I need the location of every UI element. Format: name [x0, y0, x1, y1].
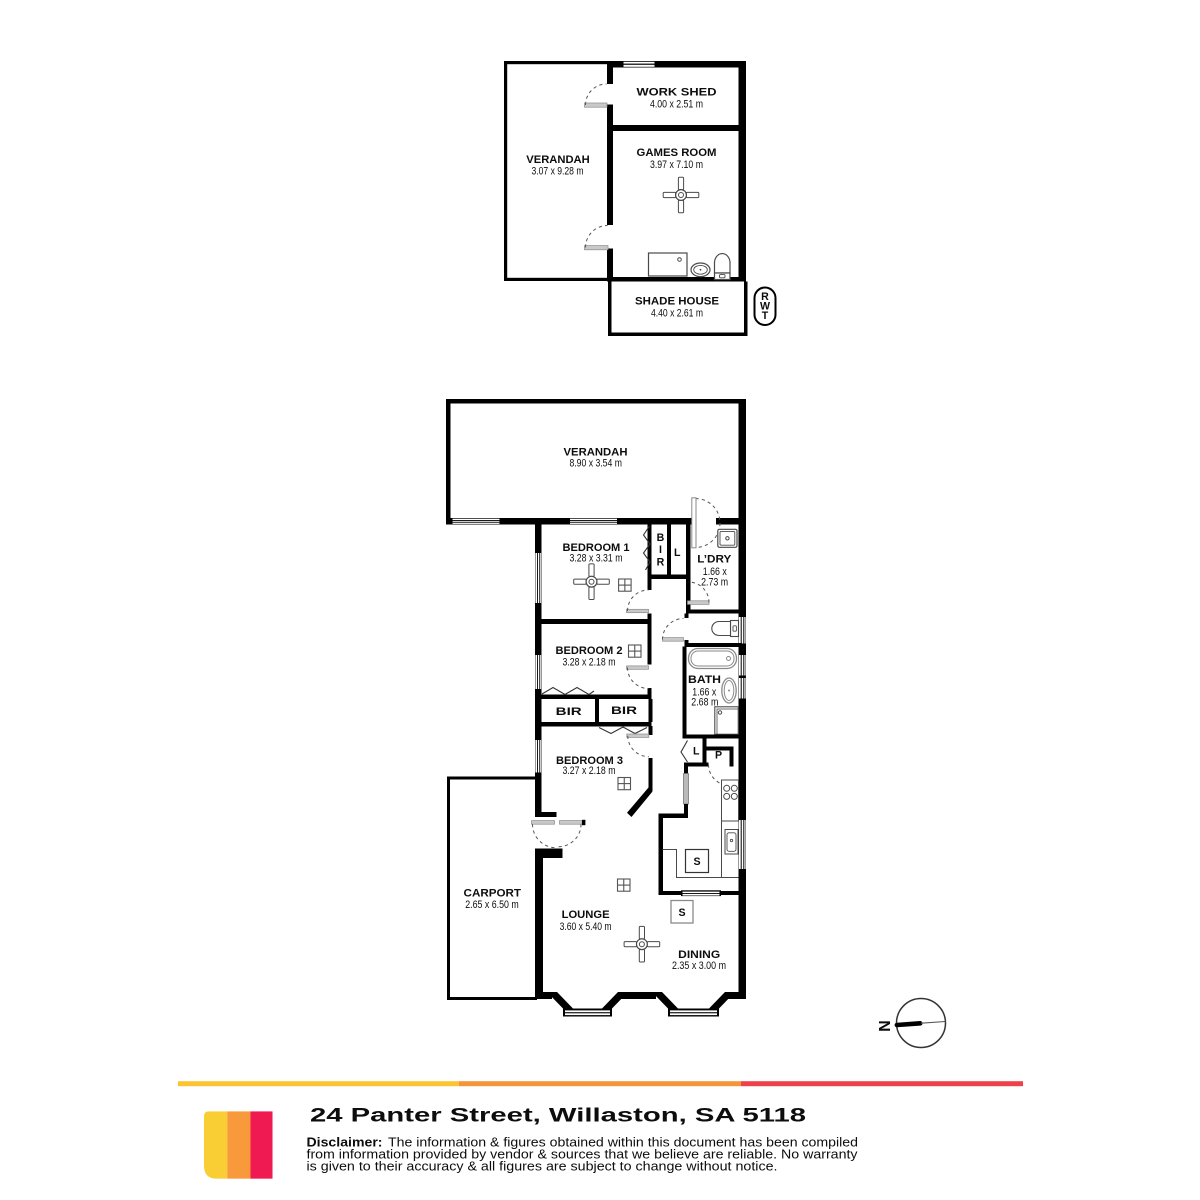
svg-text:R: R [657, 557, 665, 569]
svg-text:L’DRY: L’DRY [697, 554, 732, 566]
svg-text:2.73 m: 2.73 m [701, 577, 728, 589]
svg-text:WORK SHED: WORK SHED [637, 87, 717, 99]
svg-text:BIR: BIR [611, 705, 637, 717]
svg-text:S: S [679, 907, 686, 919]
svg-text:8.90 x 3.54 m: 8.90 x 3.54 m [569, 458, 622, 470]
svg-text:BATH: BATH [688, 674, 721, 686]
svg-text:4.40 x 2.61 m: 4.40 x 2.61 m [651, 308, 703, 320]
svg-text:3.97 x 7.10 m: 3.97 x 7.10 m [650, 159, 703, 171]
svg-text:3.27 x 2.18 m: 3.27 x 2.18 m [563, 765, 616, 777]
svg-text:is given to their accuracy & a: is given to their accuracy & all figures… [307, 1159, 778, 1174]
svg-text:T: T [762, 310, 769, 322]
svg-text:3.28 x 3.31 m: 3.28 x 3.31 m [570, 552, 623, 564]
svg-text:BEDROOM 2: BEDROOM 2 [556, 645, 623, 657]
svg-text:2.65 x 6.50 m: 2.65 x 6.50 m [465, 899, 519, 911]
svg-text:3.28 x 2.18 m: 3.28 x 2.18 m [563, 657, 616, 669]
svg-text:3.07 x 9.28 m: 3.07 x 9.28 m [532, 166, 584, 178]
svg-text:L: L [693, 746, 700, 758]
svg-text:CARPORT: CARPORT [464, 888, 522, 900]
svg-text:L: L [674, 547, 681, 559]
svg-text:P: P [715, 750, 722, 762]
svg-text:I: I [659, 544, 662, 556]
svg-text:3.60 x 5.40 m: 3.60 x 5.40 m [560, 921, 612, 933]
svg-text:SHADE HOUSE: SHADE HOUSE [635, 296, 720, 308]
svg-text:B: B [657, 532, 665, 544]
svg-text:2.35 x 3.00 m: 2.35 x 3.00 m [672, 960, 726, 972]
svg-text:GAMES ROOM: GAMES ROOM [637, 147, 717, 159]
svg-text:N: N [875, 1020, 892, 1032]
svg-text:VERANDAH: VERANDAH [526, 154, 590, 166]
svg-text:BIR: BIR [556, 706, 582, 718]
svg-text:S: S [694, 856, 701, 868]
svg-text:4.00 x 2.51 m: 4.00 x 2.51 m [650, 98, 703, 110]
svg-text:LOUNGE: LOUNGE [562, 909, 611, 921]
svg-text:24 Panter Street, Willaston, S: 24 Panter Street, Willaston, SA 5118 [310, 1106, 806, 1127]
